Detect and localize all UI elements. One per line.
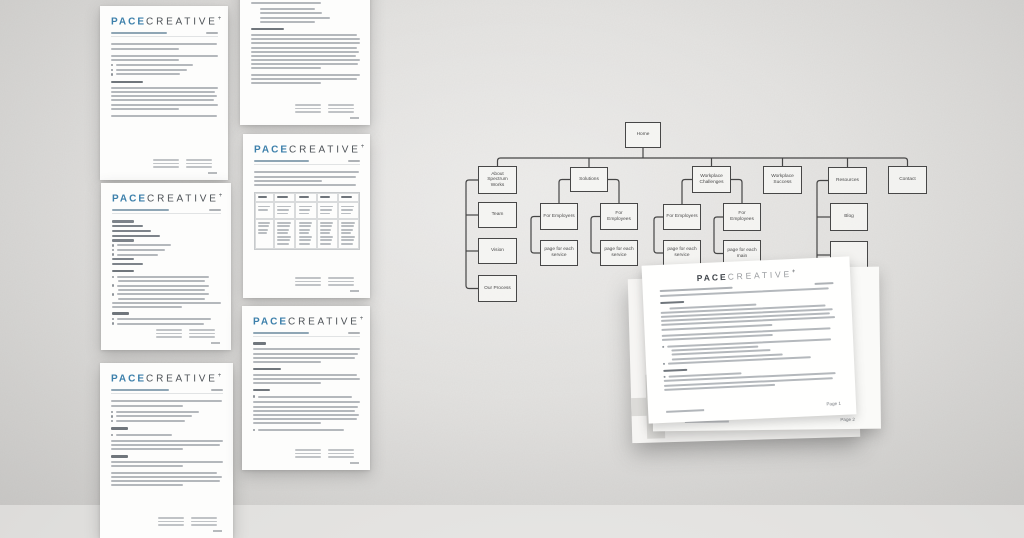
bullet-dot: [662, 345, 664, 347]
greeked-line: [158, 517, 184, 519]
page-number: [213, 530, 222, 532]
page-number: Page 1: [826, 401, 841, 407]
bullet-dot: [663, 363, 665, 365]
logo-creative: CREATIVE: [727, 269, 792, 282]
greeked-line: [666, 409, 704, 413]
bullet-dot: [664, 376, 666, 378]
pace-creative-logo: PACECREATIVE+: [659, 267, 833, 284]
greeked-line: [158, 524, 184, 526]
greeked-line: [158, 521, 184, 523]
footer-column: [191, 517, 217, 526]
footer-contact-block: [158, 517, 217, 526]
footer-column: [158, 517, 184, 526]
greeked-line: [191, 524, 217, 526]
logo-mark: +: [792, 269, 796, 275]
greeked-line: [663, 369, 687, 372]
logo-pace: PACE: [697, 272, 728, 283]
greeked-line: [191, 517, 217, 519]
page-number: Page 2: [840, 417, 855, 422]
greeked-line: [660, 300, 684, 303]
paper-stack: Page 2PACECREATIVE+Page 1: [0, 0, 1024, 505]
stack-page-top: PACECREATIVE+Page 1: [642, 256, 857, 423]
greeked-line: [191, 521, 217, 523]
